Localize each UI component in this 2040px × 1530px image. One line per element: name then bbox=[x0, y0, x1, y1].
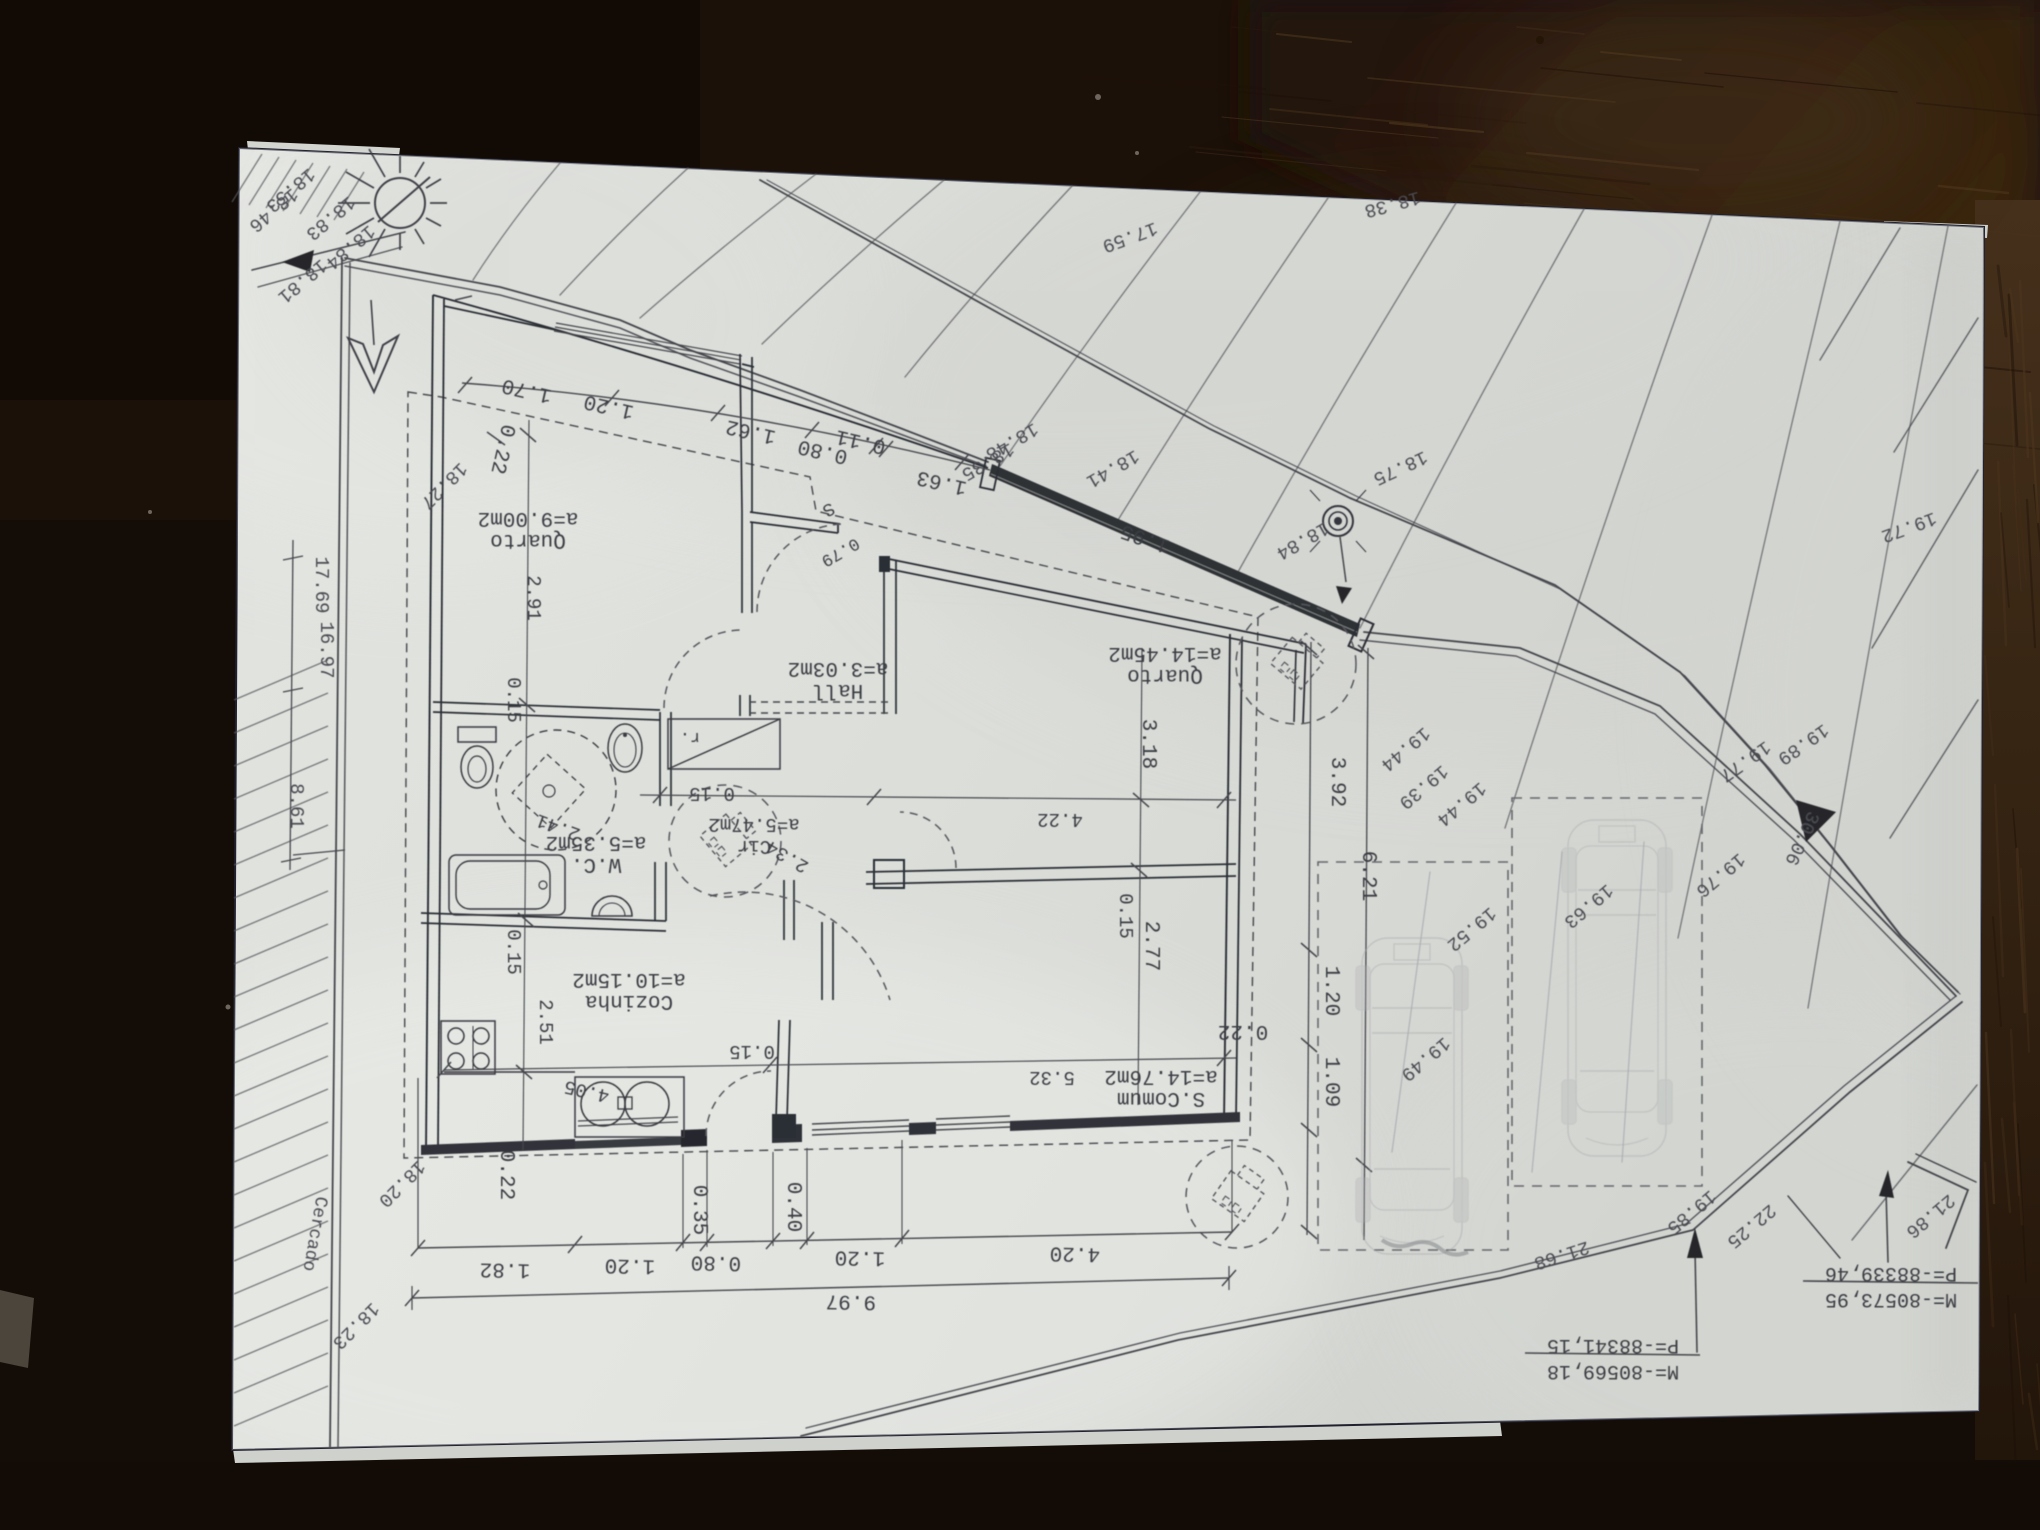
svg-text:Hall: Hall bbox=[813, 678, 863, 701]
svg-text:1.20: 1.20 bbox=[605, 1253, 656, 1277]
svg-text:0.22: 0.22 bbox=[1218, 1019, 1268, 1042]
svg-text:a=3.03m2: a=3.03m2 bbox=[788, 656, 889, 679]
svg-text:P=-88341,15: P=-88341,15 bbox=[1547, 1333, 1679, 1356]
svg-text:2.77: 2.77 bbox=[1139, 921, 1162, 971]
svg-text:9.97: 9.97 bbox=[826, 1289, 877, 1313]
svg-text:5.32: 5.32 bbox=[1029, 1066, 1075, 1088]
svg-text:0.15: 0.15 bbox=[729, 1040, 775, 1062]
svg-text:Quarto: Quarto bbox=[490, 528, 566, 551]
svg-text:0.15: 0.15 bbox=[502, 929, 524, 975]
svg-text:0.40: 0.40 bbox=[781, 1182, 804, 1232]
svg-text:0.15: 0.15 bbox=[1114, 893, 1136, 939]
svg-text:4.22: 4.22 bbox=[1037, 808, 1083, 830]
svg-text:3.92: 3.92 bbox=[1325, 757, 1348, 807]
svg-text:3.18: 3.18 bbox=[1136, 719, 1159, 769]
svg-text:S.Comum: S.Comum bbox=[1117, 1086, 1205, 1109]
svg-text:0.15: 0.15 bbox=[502, 677, 524, 723]
svg-text:a=9.00m2: a=9.00m2 bbox=[478, 506, 579, 529]
svg-text:0.22: 0.22 bbox=[494, 1150, 517, 1200]
svg-text:2.51: 2.51 bbox=[534, 999, 556, 1045]
svg-text:Cozinha: Cozinha bbox=[585, 989, 673, 1012]
svg-text:M=-80569,18: M=-80569,18 bbox=[1547, 1359, 1679, 1382]
svg-text:a=14.45m2: a=14.45m2 bbox=[1108, 641, 1221, 664]
svg-text:P=-88339,46: P=-88339,46 bbox=[1825, 1261, 1957, 1284]
svg-text:16.97: 16.97 bbox=[315, 621, 337, 678]
svg-text:r.: r. bbox=[680, 727, 700, 746]
svg-text:1.20: 1.20 bbox=[1319, 966, 1342, 1016]
svg-text:1.82: 1.82 bbox=[480, 1257, 531, 1281]
svg-text:Quarto: Quarto bbox=[1127, 663, 1203, 686]
svg-text:M=-80573,95: M=-80573,95 bbox=[1825, 1287, 1957, 1310]
svg-text:1.20: 1.20 bbox=[835, 1245, 886, 1269]
svg-text:0.80: 0.80 bbox=[691, 1250, 742, 1274]
svg-text:a=5.47m2: a=5.47m2 bbox=[708, 813, 799, 835]
svg-text:W.C.: W.C. bbox=[571, 852, 621, 875]
svg-text:2.91: 2.91 bbox=[522, 575, 544, 621]
svg-text:1.09: 1.09 bbox=[1319, 1057, 1342, 1107]
svg-text:a=14.76m2: a=14.76m2 bbox=[1104, 1064, 1217, 1087]
svg-text:6.21: 6.21 bbox=[1356, 851, 1379, 901]
svg-text:4.20: 4.20 bbox=[1050, 1241, 1101, 1265]
svg-text:0.15: 0.15 bbox=[689, 782, 735, 804]
svg-text:a=10.15m2: a=10.15m2 bbox=[572, 967, 685, 990]
svg-text:17.69: 17.69 bbox=[310, 556, 332, 613]
svg-text:8.61: 8.61 bbox=[285, 783, 307, 829]
svg-text:0.35: 0.35 bbox=[687, 1185, 710, 1235]
